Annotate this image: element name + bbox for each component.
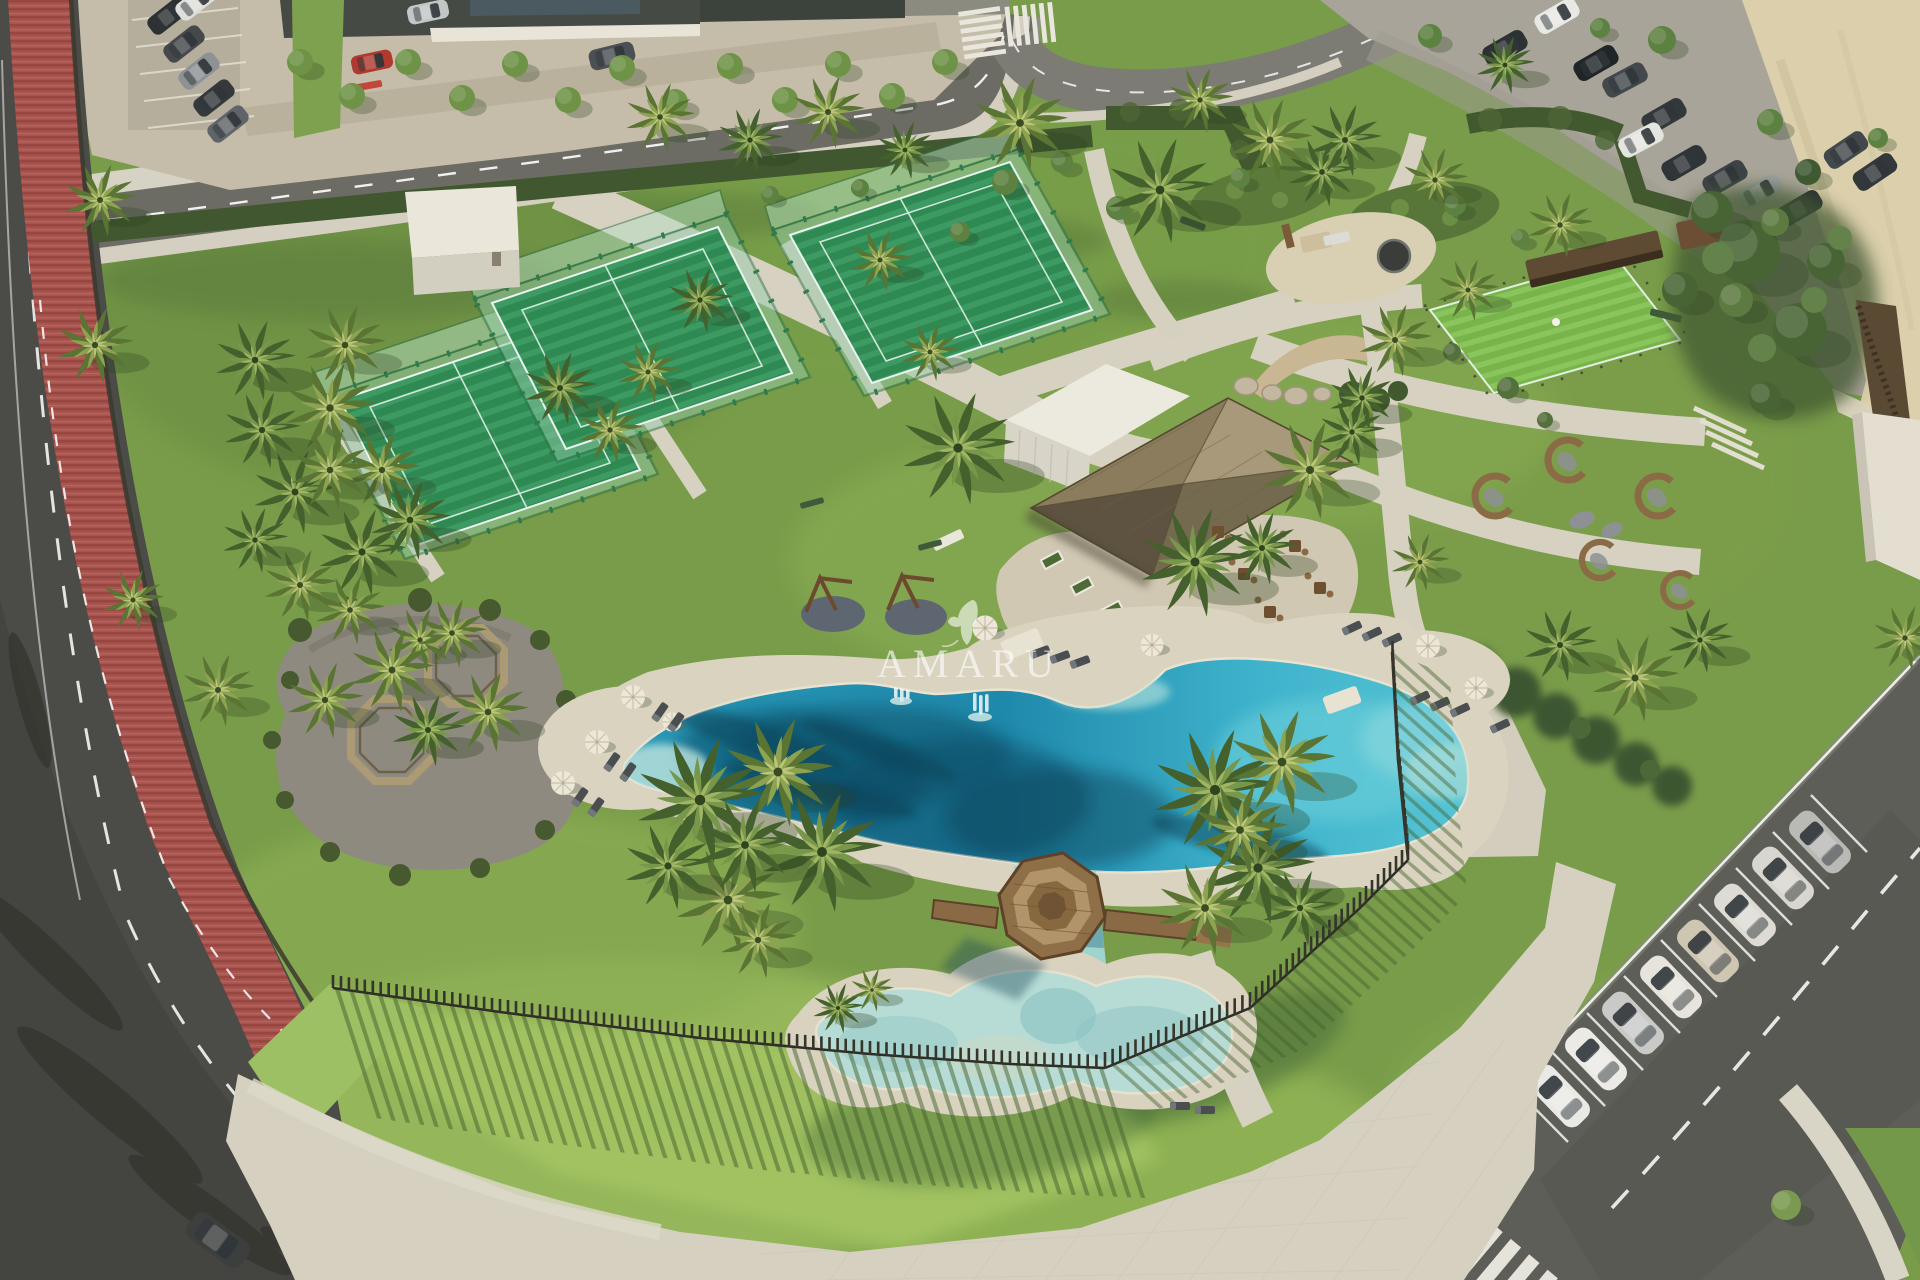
svg-text:AMARU: AMARU <box>877 641 1061 686</box>
